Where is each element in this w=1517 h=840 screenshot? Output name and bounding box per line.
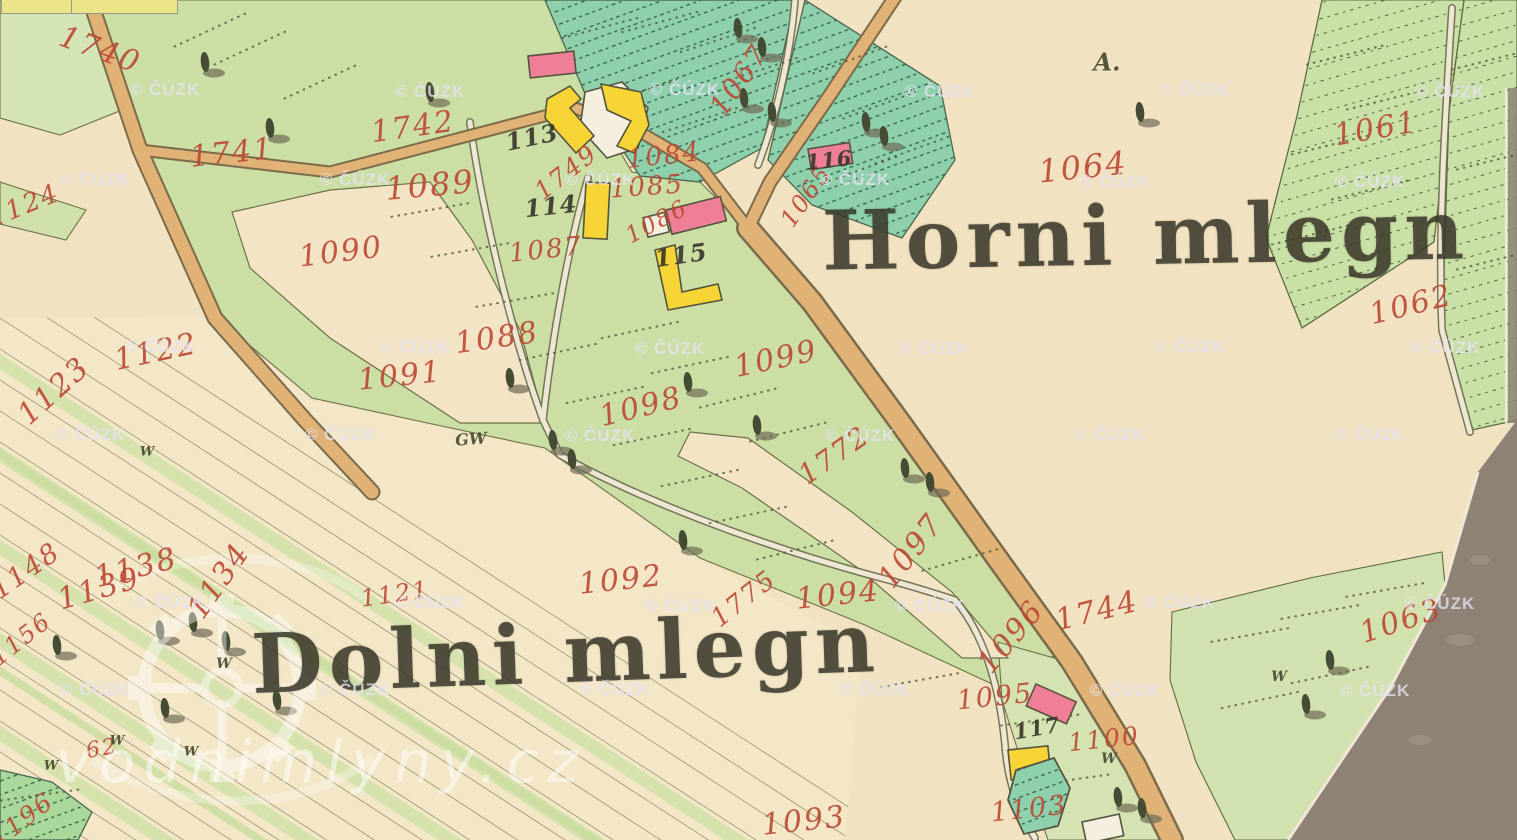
cadastral-map[interactable] [0, 0, 1517, 840]
wooden-building [583, 182, 610, 239]
map-viewer: Horni mlegnDolni mlegn174017411742112410… [0, 0, 1517, 840]
help-button[interactable]: Nápověda [1, 0, 74, 14]
save-composition-button[interactable]: Uložit kompozici [71, 0, 178, 14]
masonry-building [528, 51, 576, 78]
